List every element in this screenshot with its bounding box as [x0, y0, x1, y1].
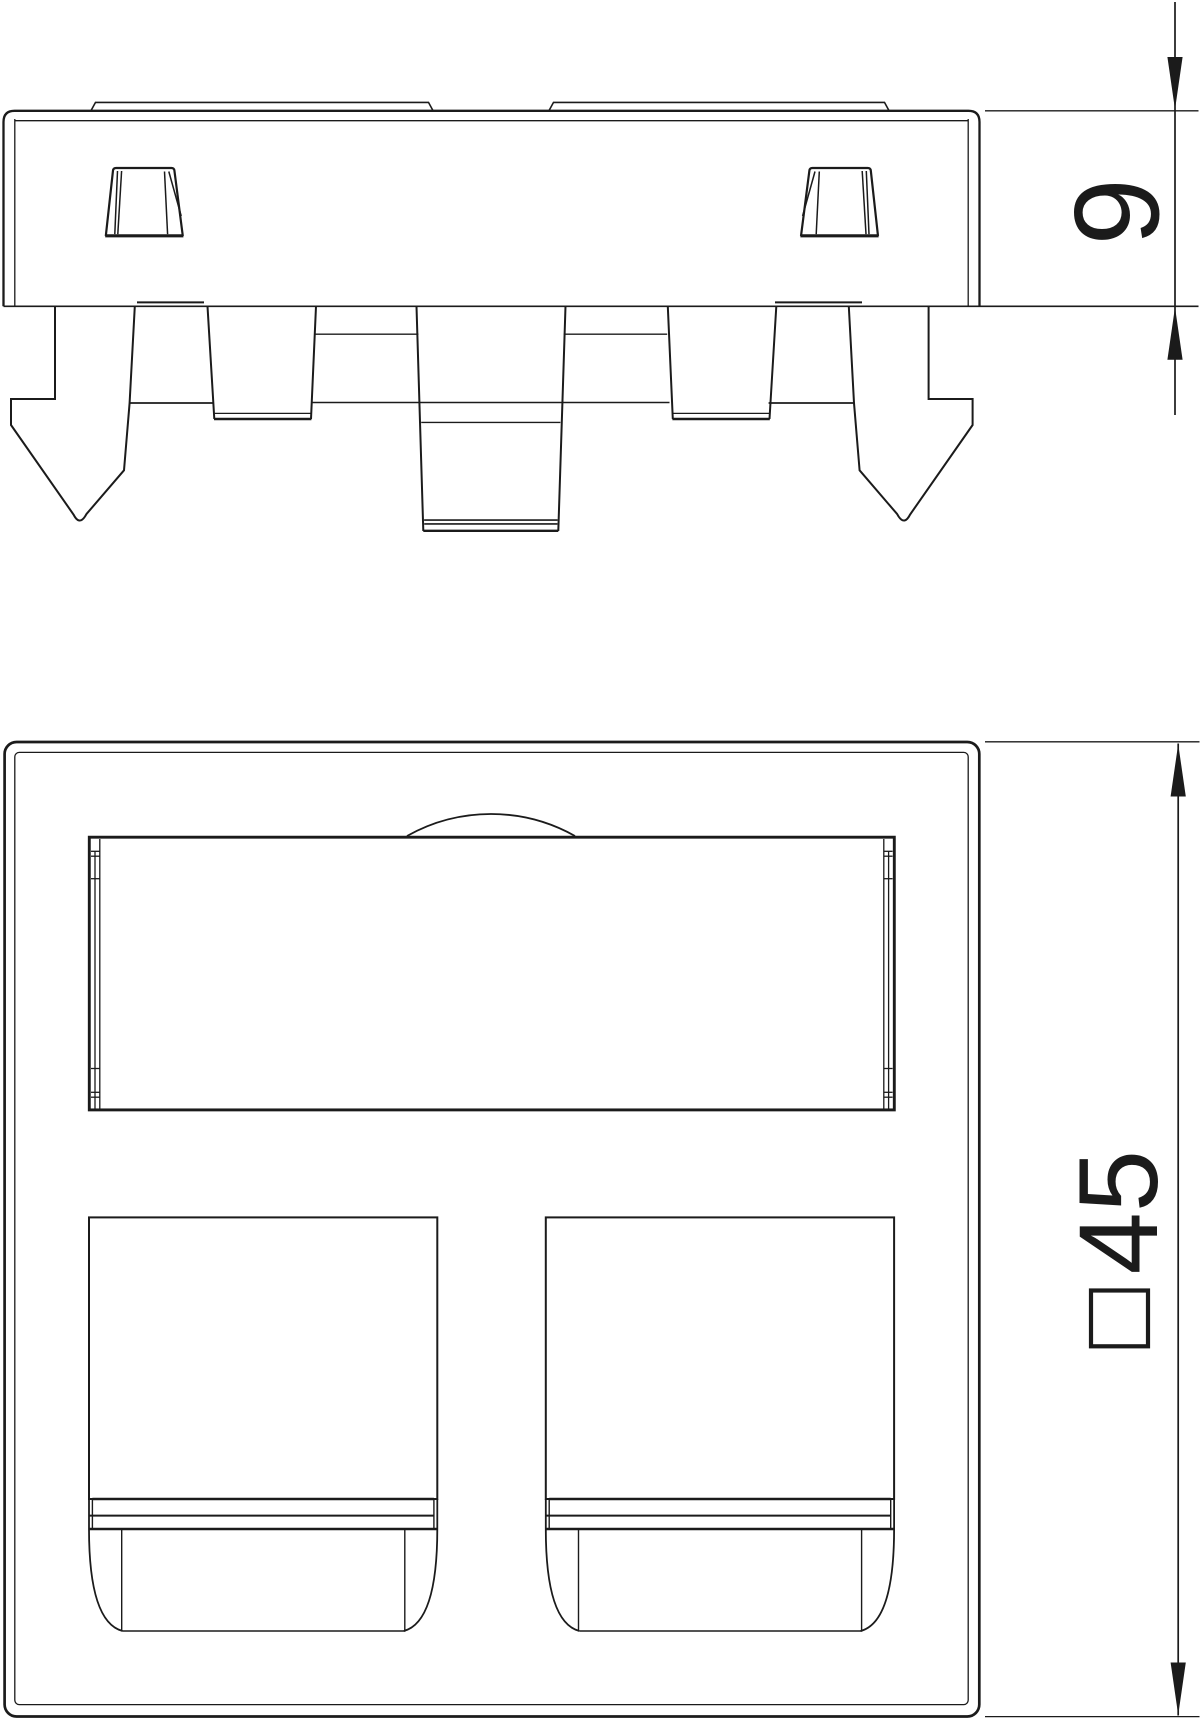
svg-text:9: 9	[1049, 178, 1185, 245]
svg-text:45: 45	[1056, 1150, 1181, 1275]
